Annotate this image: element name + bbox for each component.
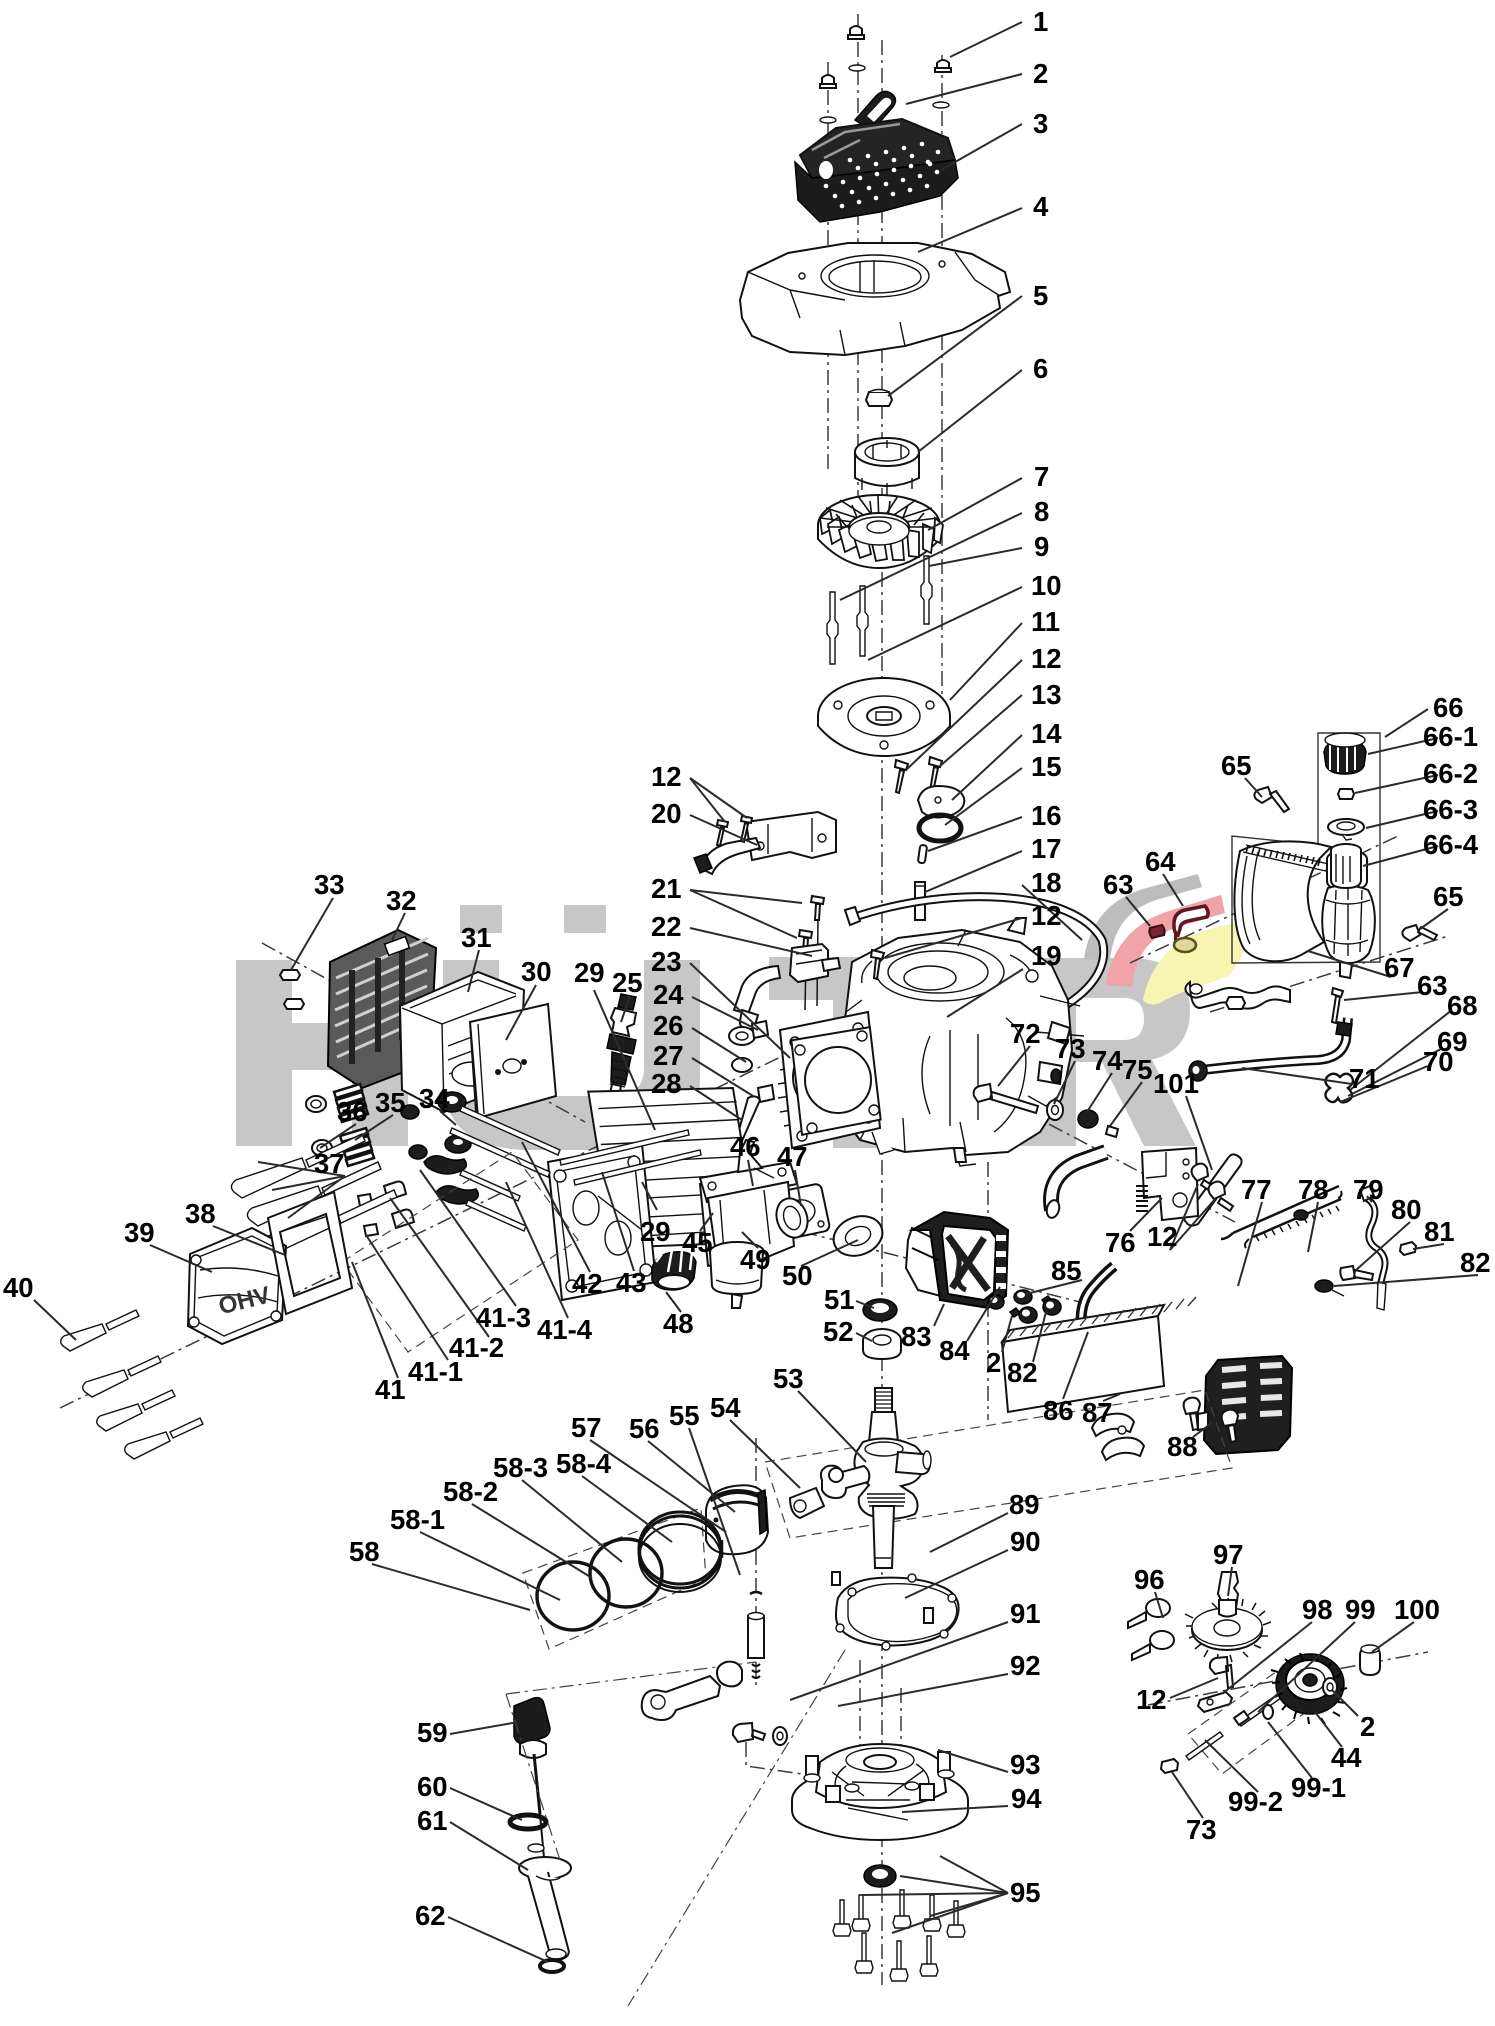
svg-text:28: 28 [651,1068,682,1099]
svg-text:22: 22 [651,911,682,942]
svg-text:63: 63 [1103,869,1134,900]
svg-text:68: 68 [1447,990,1478,1021]
svg-text:17: 17 [1031,833,1062,864]
svg-text:98: 98 [1302,1594,1333,1625]
svg-text:12: 12 [1031,643,1062,674]
svg-text:41-2: 41-2 [449,1332,504,1363]
svg-text:25: 25 [612,967,643,998]
svg-text:40: 40 [3,1272,34,1303]
svg-text:13: 13 [1031,679,1062,710]
svg-text:66-4: 66-4 [1423,829,1479,860]
svg-text:94: 94 [1011,1783,1042,1814]
svg-text:50: 50 [782,1260,813,1291]
svg-text:41: 41 [375,1374,406,1405]
svg-text:47: 47 [777,1141,808,1172]
svg-text:95: 95 [1010,1877,1041,1908]
svg-text:1: 1 [1033,6,1048,37]
svg-text:93: 93 [1010,1749,1041,1780]
svg-text:12: 12 [1147,1221,1178,1252]
svg-text:36: 36 [337,1096,368,1127]
svg-text:19: 19 [1031,940,1062,971]
svg-text:87: 87 [1082,1397,1113,1428]
svg-text:97: 97 [1213,1539,1244,1570]
svg-text:27: 27 [653,1040,684,1071]
svg-text:58: 58 [349,1536,380,1567]
svg-text:31: 31 [461,922,492,953]
svg-text:84: 84 [939,1335,970,1366]
svg-text:12: 12 [1136,1684,1167,1715]
svg-text:4: 4 [1033,191,1049,222]
svg-text:99-2: 99-2 [1228,1786,1283,1817]
svg-text:55: 55 [669,1400,700,1431]
svg-text:38: 38 [185,1198,216,1229]
svg-text:46: 46 [730,1131,761,1162]
svg-text:96: 96 [1134,1564,1165,1595]
svg-text:15: 15 [1031,751,1062,782]
svg-text:37: 37 [314,1148,345,1179]
svg-text:52: 52 [823,1316,854,1347]
svg-text:74: 74 [1092,1045,1123,1076]
svg-text:82: 82 [1460,1247,1491,1278]
svg-text:33: 33 [314,869,345,900]
svg-text:16: 16 [1031,800,1062,831]
svg-text:72: 72 [1010,1018,1041,1049]
svg-text:29: 29 [640,1216,671,1247]
svg-text:64: 64 [1145,846,1176,877]
svg-text:89: 89 [1009,1489,1040,1520]
svg-text:58-2: 58-2 [443,1476,498,1507]
svg-text:2: 2 [1360,1711,1375,1742]
svg-text:66-2: 66-2 [1423,758,1478,789]
svg-text:42: 42 [572,1268,603,1299]
svg-text:101: 101 [1153,1068,1199,1099]
svg-text:2: 2 [1033,58,1048,89]
svg-text:73: 73 [1055,1033,1086,1064]
svg-text:88: 88 [1167,1431,1198,1462]
svg-text:66-1: 66-1 [1423,721,1478,752]
svg-text:86: 86 [1043,1395,1074,1426]
svg-text:20: 20 [651,798,682,829]
svg-text:56: 56 [629,1413,660,1444]
svg-text:75: 75 [1122,1054,1153,1085]
svg-text:14: 14 [1031,718,1062,749]
svg-text:44: 44 [1331,1742,1362,1773]
svg-text:66: 66 [1433,692,1464,723]
svg-text:35: 35 [375,1087,406,1118]
svg-text:79: 79 [1353,1174,1384,1205]
svg-text:5: 5 [1033,280,1048,311]
svg-text:54: 54 [710,1392,741,1423]
svg-text:71: 71 [1349,1063,1380,1094]
svg-text:58-4: 58-4 [556,1448,612,1479]
svg-text:2: 2 [986,1347,1001,1378]
svg-text:53: 53 [773,1363,804,1394]
svg-text:61: 61 [417,1805,448,1836]
svg-text:60: 60 [417,1771,448,1802]
svg-text:41-3: 41-3 [476,1302,531,1333]
svg-text:82: 82 [1007,1357,1038,1388]
svg-text:9: 9 [1034,531,1049,562]
svg-text:49: 49 [740,1244,771,1275]
svg-text:6: 6 [1033,353,1048,384]
svg-text:80: 80 [1391,1194,1422,1225]
svg-text:7: 7 [1034,461,1049,492]
svg-text:32: 32 [386,885,417,916]
svg-text:10: 10 [1031,570,1062,601]
svg-text:65: 65 [1221,750,1252,781]
svg-text:76: 76 [1105,1227,1136,1258]
svg-text:41-4: 41-4 [537,1314,593,1345]
svg-text:77: 77 [1241,1174,1272,1205]
svg-text:34: 34 [419,1083,450,1114]
svg-text:59: 59 [417,1717,448,1748]
svg-text:51: 51 [824,1284,855,1315]
svg-text:30: 30 [521,956,552,987]
svg-text:18: 18 [1031,867,1062,898]
svg-text:63: 63 [1417,970,1448,1001]
svg-text:23: 23 [651,946,682,977]
svg-text:99-1: 99-1 [1291,1772,1346,1803]
svg-text:70: 70 [1423,1046,1454,1077]
svg-text:83: 83 [901,1321,932,1352]
svg-text:57: 57 [571,1412,602,1443]
svg-text:11: 11 [1031,606,1060,637]
svg-text:8: 8 [1034,496,1049,527]
svg-text:73: 73 [1186,1814,1217,1845]
svg-text:90: 90 [1010,1526,1041,1557]
svg-text:39: 39 [124,1217,155,1248]
svg-text:3: 3 [1033,108,1048,139]
svg-text:45: 45 [682,1227,713,1258]
svg-text:12: 12 [1031,900,1062,931]
svg-text:81: 81 [1424,1216,1455,1247]
svg-text:29: 29 [574,957,605,988]
svg-text:62: 62 [415,1900,446,1931]
svg-text:91: 91 [1010,1598,1041,1629]
svg-text:12: 12 [651,761,682,792]
svg-text:26: 26 [653,1010,684,1041]
svg-text:67: 67 [1384,952,1415,983]
svg-text:99: 99 [1345,1594,1376,1625]
svg-text:43: 43 [616,1267,647,1298]
svg-text:58-3: 58-3 [493,1452,548,1483]
svg-text:66-3: 66-3 [1423,794,1478,825]
svg-text:58-1: 58-1 [390,1504,445,1535]
svg-text:100: 100 [1394,1594,1440,1625]
svg-text:48: 48 [663,1308,694,1339]
svg-text:78: 78 [1298,1174,1329,1205]
svg-text:24: 24 [653,979,684,1010]
svg-text:65: 65 [1433,881,1464,912]
svg-text:85: 85 [1051,1255,1082,1286]
svg-text:21: 21 [651,873,682,904]
svg-text:92: 92 [1010,1650,1041,1681]
